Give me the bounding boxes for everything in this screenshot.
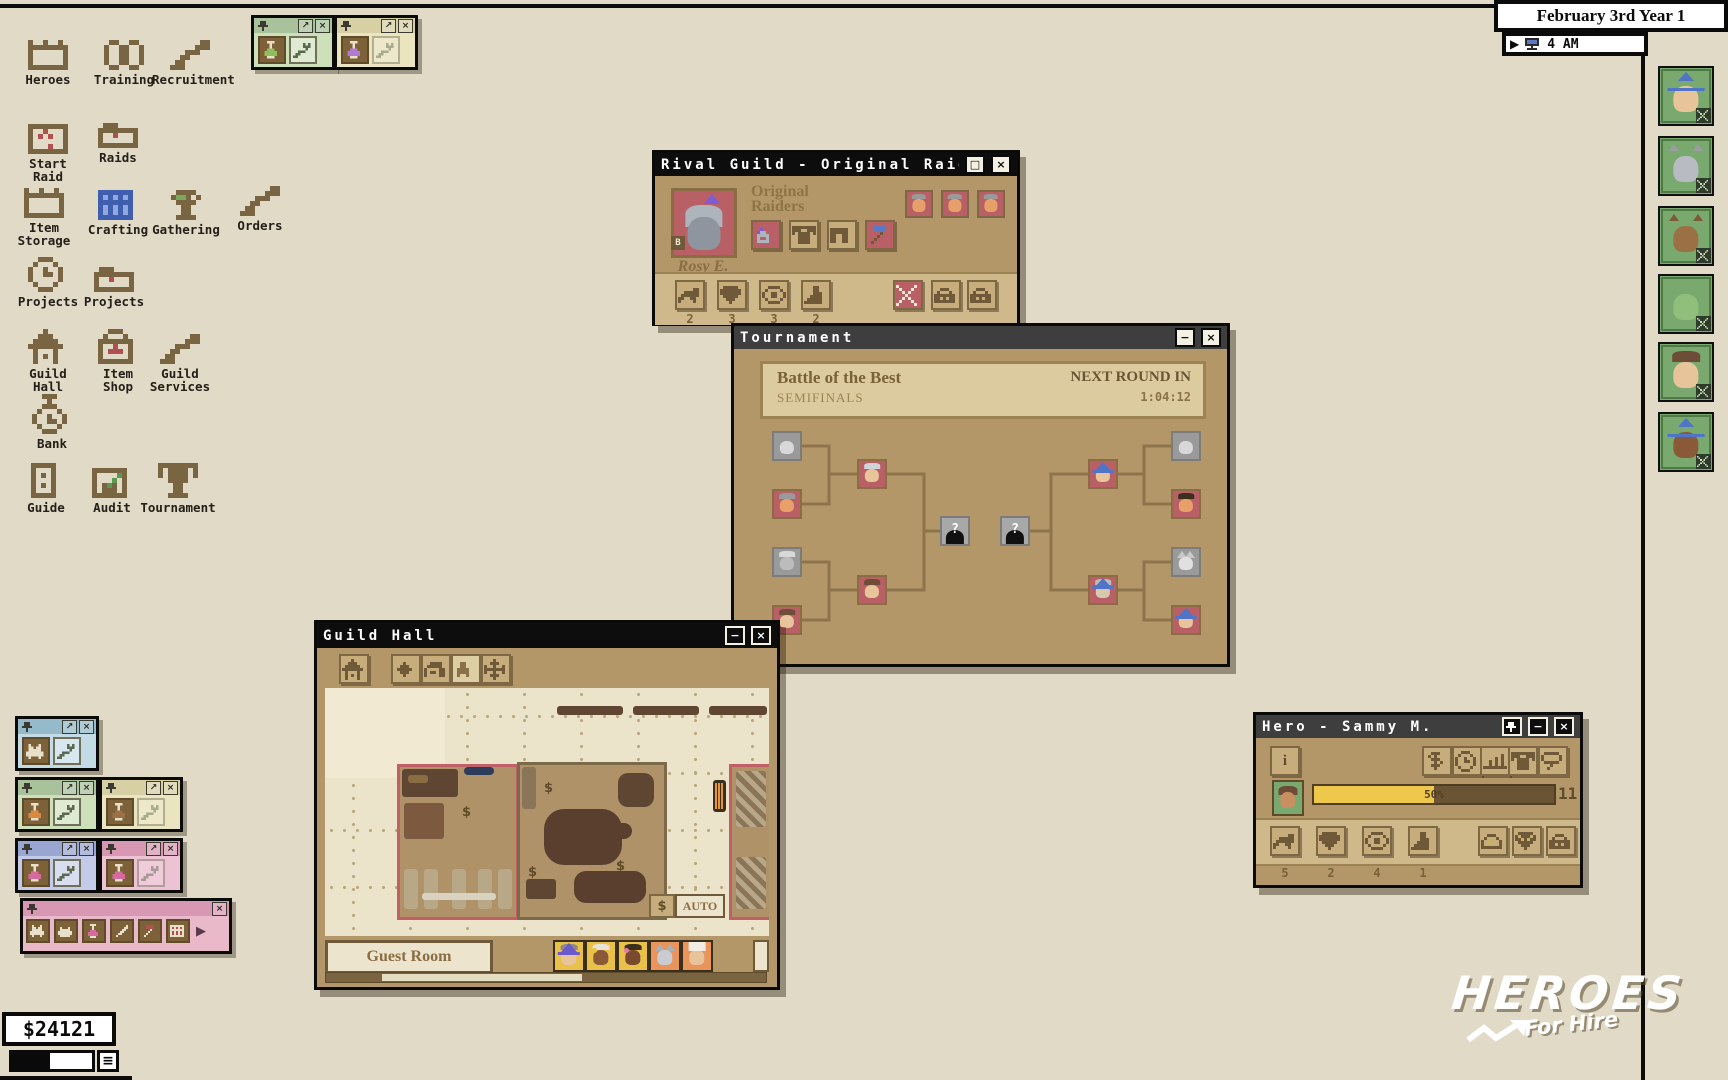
window-title: Rival Guild - Original Raider <box>661 157 959 173</box>
screen-right-border <box>1641 0 1645 1080</box>
equipment-slot-helmet[interactable] <box>751 220 781 250</box>
desktop-icon-guild-hall[interactable]: Guild Hall <box>10 320 86 393</box>
sidebar-hero-dark-wizard[interactable] <box>1658 412 1714 472</box>
bin-icon <box>6 174 82 218</box>
furniture-tool-button[interactable] <box>421 654 451 684</box>
minimize-button[interactable]: − <box>1528 717 1548 736</box>
time-speed-slider[interactable] <box>9 1050 95 1072</box>
close-button[interactable]: × <box>991 155 1011 174</box>
horizontal-scrollbar[interactable] <box>325 972 767 983</box>
desktop-icon-training[interactable]: Training <box>86 26 162 86</box>
date-text: February 3rd Year 1 <box>1537 6 1686 26</box>
desktop-icon-recruitment[interactable]: Recruitment <box>152 26 228 86</box>
hero-action-shieldswap-button[interactable] <box>1512 826 1542 856</box>
wrench-icon[interactable] <box>53 859 81 887</box>
sidebar-hero-green-slime[interactable] <box>1658 274 1714 334</box>
window-title: Hero - Sammy M. <box>1262 719 1496 735</box>
pin-icon[interactable] <box>339 21 355 31</box>
restore-icon[interactable]: ↗ <box>298 19 313 33</box>
rival-member-portrait-1[interactable] <box>905 190 933 218</box>
hero-stopwatch-button[interactable] <box>1452 746 1482 776</box>
play-icon[interactable]: ▶ <box>196 924 206 939</box>
screen-top-border <box>0 4 1728 8</box>
wrench-icon[interactable] <box>289 36 317 64</box>
hero-level: 11 <box>1558 784 1577 803</box>
flask-icon[interactable] <box>22 798 50 826</box>
move-tool-button[interactable] <box>481 654 511 684</box>
time-strip: ▶ 4 AM <box>1502 32 1648 56</box>
close-icon[interactable]: × <box>163 781 178 795</box>
tournament-header-panel: Battle of the Best SEMIFINALS NEXT ROUND… <box>760 361 1206 419</box>
logo-arrow-icon <box>1466 1018 1536 1046</box>
desktop-icon-label: Projects <box>10 295 86 308</box>
desktop-icon-label: Tournament <box>140 501 216 514</box>
menu-button[interactable]: ≡ <box>97 1050 119 1072</box>
guild-hall-titlebar[interactable]: Guild Hall − × <box>317 623 777 648</box>
bear-icon[interactable] <box>54 919 78 943</box>
desktop-icon-start-raid[interactable]: Start Raid <box>10 110 86 183</box>
close-icon[interactable]: × <box>79 781 94 795</box>
restore-icon[interactable]: ↗ <box>146 842 161 856</box>
close-button[interactable]: × <box>1554 717 1574 736</box>
tournament-titlebar[interactable]: Tournament − × <box>734 326 1227 349</box>
minimized-window-blue[interactable]: ↗× <box>15 716 99 771</box>
cat-icon[interactable] <box>22 737 50 765</box>
stopwatch-icon <box>10 248 86 292</box>
rival-stat-eye[interactable] <box>759 280 789 310</box>
game-desktop: { "topbar": { "date": "February 3rd Year… <box>0 0 1728 1080</box>
desktop-icon-label: Training <box>86 73 162 86</box>
bracket-slot-round1_right-1[interactable] <box>1171 489 1201 519</box>
close-icon[interactable]: × <box>79 842 94 856</box>
hero-status-badge-icon <box>1696 316 1711 331</box>
money-amount: $24121 <box>23 1017 95 1041</box>
leader-rank-badge: B <box>671 236 685 250</box>
minimized-window-cream[interactable]: ↗× <box>334 15 418 70</box>
grid-icon <box>80 176 156 220</box>
desktop-icon-item-storage[interactable]: Item Storage <box>6 174 82 247</box>
sidebar-hero-brown-hair-girl[interactable] <box>1658 342 1714 402</box>
hero-bars-button[interactable] <box>1480 746 1510 776</box>
stump-icon <box>148 176 224 220</box>
desktop-icon-label: Guide <box>8 501 84 514</box>
desktop-icon-label: Raids <box>80 151 156 164</box>
desktop-icon-label: Gathering <box>148 223 224 236</box>
hero-stat-boot[interactable] <box>1408 826 1438 856</box>
minimized-window-green2[interactable]: ↗× <box>15 777 99 832</box>
rival-guild-titlebar[interactable]: Rival Guild - Original Raider □ × <box>655 153 1017 176</box>
rival-stat-boot[interactable] <box>801 280 831 310</box>
minimized-window-pink[interactable]: ↗× <box>99 838 183 893</box>
desktop-icon-label: Heroes <box>10 73 86 86</box>
restore-icon[interactable]: ↗ <box>62 781 77 795</box>
event-stage: SEMIFINALS <box>777 390 864 406</box>
restore-icon[interactable]: ↗ <box>62 720 77 734</box>
bracket-slot-finals-1[interactable]: ? <box>1000 516 1030 546</box>
close-icon[interactable]: × <box>79 720 94 734</box>
rival-stat-value: 2 <box>675 312 705 326</box>
restore-icon[interactable]: ↗ <box>381 19 396 33</box>
pin-icon[interactable] <box>25 904 41 914</box>
screen-bottom-border <box>0 1076 132 1080</box>
desktop-icon-projects[interactable]: Projects <box>76 248 152 308</box>
pencil-icon[interactable] <box>110 919 134 943</box>
desktop-icon-raids[interactable]: Raids <box>80 104 156 164</box>
desktop-icon-guide[interactable]: Guide <box>8 454 84 514</box>
bracket-slot-semifinal_right-0[interactable] <box>1088 459 1118 489</box>
home-button[interactable] <box>339 654 369 684</box>
folder-icon <box>80 104 156 148</box>
hero-stat-value: 5 <box>1270 866 1300 880</box>
rival-guild-window: Rival Guild - Original Raider □ × B Rosy… <box>652 150 1020 326</box>
rival-stats-panel <box>655 272 1017 325</box>
pin-icon[interactable] <box>104 783 120 793</box>
wrench-icon[interactable] <box>372 36 400 64</box>
house-icon <box>10 320 86 364</box>
pin-button[interactable] <box>1502 717 1522 736</box>
guild-room-guest[interactable]: $ <box>397 764 519 920</box>
bracket-slot-finals-0[interactable]: ? <box>940 516 970 546</box>
bracket-slot-round1_left-0[interactable] <box>772 431 802 461</box>
hero-action-lock-button[interactable] <box>1546 826 1576 856</box>
arm-icon <box>142 320 218 364</box>
arm-icon <box>222 172 298 216</box>
close-icon[interactable]: × <box>212 902 227 916</box>
hero-stat-eye[interactable] <box>1362 826 1392 856</box>
folder-icon <box>76 248 152 292</box>
minimize-button[interactable]: − <box>725 626 745 645</box>
hero-status-badge-icon <box>1696 248 1711 263</box>
desktop-icon-bank[interactable]: Bank <box>14 390 90 450</box>
wrench-icon[interactable] <box>137 798 165 826</box>
minimized-window-lavender[interactable]: ↗× <box>15 838 99 893</box>
sidebar-hero-gray-wolf[interactable] <box>1658 136 1714 196</box>
bracket-slot-round1_right-3[interactable] <box>1171 605 1201 635</box>
sidebar-hero-brown-bear[interactable] <box>1658 206 1714 266</box>
auto-button[interactable]: AUTO <box>675 894 725 918</box>
flask-icon[interactable] <box>341 36 369 64</box>
desktop-icon-orders[interactable]: Orders <box>222 172 298 232</box>
pin-icon[interactable] <box>20 783 36 793</box>
furnace <box>713 780 726 812</box>
desktop-icon-heroes[interactable]: Heroes <box>10 26 86 86</box>
flask-icon[interactable] <box>106 859 134 887</box>
desktop-icon-label: Bank <box>14 437 90 450</box>
play-button[interactable]: ▶ <box>1510 37 1519 51</box>
wrench-icon[interactable] <box>53 737 81 765</box>
hero-stat-value: 4 <box>1362 866 1392 880</box>
desktop-icon-label: Crafting <box>80 223 156 236</box>
guest-avatar-chef[interactable] <box>681 940 713 972</box>
desktop-icon-tournament[interactable]: Tournament <box>140 454 216 514</box>
minimized-window-cream2[interactable]: ↗× <box>99 777 183 832</box>
rival-action-tools-button[interactable] <box>893 280 923 310</box>
close-button[interactable]: × <box>1201 328 1221 347</box>
pink-toolbar-window: × ▶ <box>20 898 232 954</box>
desktop-icon-crafting[interactable]: Crafting <box>80 176 156 236</box>
flask-icon[interactable] <box>82 919 106 943</box>
close-icon[interactable]: × <box>315 19 330 33</box>
flask-icon[interactable] <box>258 36 286 64</box>
rival-guild-name: Original Raiders <box>751 184 809 214</box>
book-icon <box>86 26 162 70</box>
guest-avatar-cat-guest[interactable] <box>649 940 681 972</box>
money-display: $24121 <box>2 1012 116 1046</box>
desktop-icon-guild-services[interactable]: Guild Services <box>142 320 218 393</box>
hero-dollar-button[interactable] <box>1422 746 1452 776</box>
desktop-icon-projects[interactable]: Projects <box>10 248 86 308</box>
date-banner: February 3rd Year 1 <box>1494 0 1728 32</box>
pin-icon[interactable] <box>256 21 272 31</box>
flask-icon[interactable] <box>22 859 50 887</box>
bracket-slot-round1_left-1[interactable] <box>772 489 802 519</box>
paper-icon <box>8 454 84 498</box>
bracket-slot-round1_right-0[interactable] <box>1171 431 1201 461</box>
desktop-icon-label: Recruitment <box>152 73 228 86</box>
hero-titlebar[interactable]: Hero - Sammy M. − × <box>1256 715 1580 738</box>
vertical-scrollbar[interactable] <box>753 940 769 972</box>
tile-tool-button[interactable] <box>391 654 421 684</box>
guild-room-lounge[interactable]: $ $ $ <box>517 762 667 920</box>
rival-action-lock-button[interactable] <box>967 280 997 310</box>
pin-icon[interactable] <box>20 844 36 854</box>
rival-stat-fist[interactable] <box>675 280 705 310</box>
hero-bubble-button[interactable] <box>1538 746 1568 776</box>
wrench-icon[interactable] <box>53 798 81 826</box>
desktop-icon-gathering[interactable]: Gathering <box>148 176 224 236</box>
hero-action-gauge-button[interactable] <box>1478 826 1508 856</box>
hammer-icon[interactable] <box>138 919 162 943</box>
bracket-slot-round1_right-2[interactable] <box>1171 547 1201 577</box>
bin-icon <box>10 26 86 70</box>
hero-stat-shield[interactable] <box>1316 826 1346 856</box>
rival-stat-shield[interactable] <box>717 280 747 310</box>
guild-hall-map[interactable]: $ $ $ $ <box>325 688 769 936</box>
minimized-window-green[interactable]: ↗× <box>251 15 335 70</box>
equipment-slot-pants[interactable] <box>827 220 857 250</box>
hero-progress-label: 50% <box>1314 788 1554 801</box>
guest-avatar-flower-girl[interactable] <box>617 940 649 972</box>
bracket-slot-semifinal_left-0[interactable] <box>857 459 887 489</box>
hero-portrait[interactable] <box>1272 780 1304 816</box>
slider-fill <box>12 1053 50 1069</box>
money-toggle-button[interactable]: $ <box>649 894 675 918</box>
maximize-button[interactable]: □ <box>965 155 985 174</box>
next-round-timer: 1:04:12 <box>1140 390 1191 404</box>
hero-status-badge-icon <box>1696 108 1711 123</box>
guild-room-right[interactable] <box>729 764 769 920</box>
chart-icon <box>74 454 150 498</box>
info-button[interactable]: i <box>1270 746 1300 776</box>
guest-avatar-miner[interactable] <box>585 940 617 972</box>
hero-stat-value: 2 <box>1316 866 1346 880</box>
hero-status-badge-icon <box>1696 384 1711 399</box>
hero-progress-track: 50% <box>1312 784 1556 805</box>
tournament-window: Tournament − × Battle of the Best SEMIFI… <box>731 323 1230 667</box>
event-title: Battle of the Best <box>777 368 901 388</box>
people-tool-button[interactable] <box>451 654 481 684</box>
equipment-slot-shirt[interactable] <box>789 220 819 250</box>
guild-hall-window: Guild Hall − × $ <box>314 620 780 990</box>
window-title: Tournament <box>740 330 1169 346</box>
bracket-slot-semifinal_right-1[interactable] <box>1088 575 1118 605</box>
room-tab-guest-room[interactable]: Guest Room <box>325 940 493 974</box>
pin-icon[interactable] <box>20 722 36 732</box>
close-icon[interactable]: × <box>163 842 178 856</box>
pin-icon[interactable] <box>104 844 120 854</box>
next-round-label: NEXT ROUND IN <box>1070 369 1191 386</box>
moneybag-icon <box>14 390 90 434</box>
restore-icon[interactable]: ↗ <box>146 781 161 795</box>
bracket-slot-semifinal_left-1[interactable] <box>857 575 887 605</box>
hero-shirt-button[interactable] <box>1508 746 1538 776</box>
bracket-connector-lines <box>734 419 1227 664</box>
rival-action-lock-button[interactable] <box>931 280 961 310</box>
window-title: Guild Hall <box>323 628 719 644</box>
hero-stat-value: 1 <box>1408 866 1438 880</box>
minimize-button[interactable]: − <box>1175 328 1195 347</box>
desktop-icon-label: Projects <box>76 295 152 308</box>
time-text: 4 AM <box>1547 37 1578 52</box>
close-icon[interactable]: × <box>398 19 413 33</box>
wrench-icon[interactable] <box>137 859 165 887</box>
hero-status-badge-icon <box>1696 454 1711 469</box>
bracket-slot-round1_left-2[interactable] <box>772 547 802 577</box>
flask-icon[interactable] <box>106 798 134 826</box>
restore-icon[interactable]: ↗ <box>62 842 77 856</box>
sidebar-hero-blue-wizard[interactable] <box>1658 66 1714 126</box>
menu-icon: ≡ <box>102 1053 114 1069</box>
map-icon <box>10 110 86 154</box>
hero-status-badge-icon <box>1696 178 1711 193</box>
desktop-icon-label: Orders <box>222 219 298 232</box>
desktop-icon-label: Guild Services <box>142 367 218 393</box>
rival-member-portrait-3[interactable] <box>977 190 1005 218</box>
hero-window: Hero - Sammy M. − × i 50% 11 5241 <box>1253 712 1583 888</box>
arm-icon <box>152 26 228 70</box>
cat-icon[interactable] <box>26 919 50 943</box>
trophy-icon <box>140 454 216 498</box>
equipment-slot-hammer[interactable] <box>865 220 895 250</box>
close-button[interactable]: × <box>751 626 771 645</box>
hero-stat-fist[interactable] <box>1270 826 1300 856</box>
monitor-icon[interactable] <box>1525 38 1541 50</box>
desktop-icon-label: Audit <box>74 501 150 514</box>
scrollbar-thumb[interactable] <box>382 974 582 981</box>
guest-avatar-wizard-gray[interactable] <box>553 940 585 972</box>
desktop-icon-label: Item Storage <box>6 221 82 247</box>
grid-icon[interactable] <box>166 919 190 943</box>
tournament-bracket: ?? <box>734 419 1227 664</box>
desktop-icon-audit[interactable]: Audit <box>74 454 150 514</box>
rival-member-portrait-2[interactable] <box>941 190 969 218</box>
